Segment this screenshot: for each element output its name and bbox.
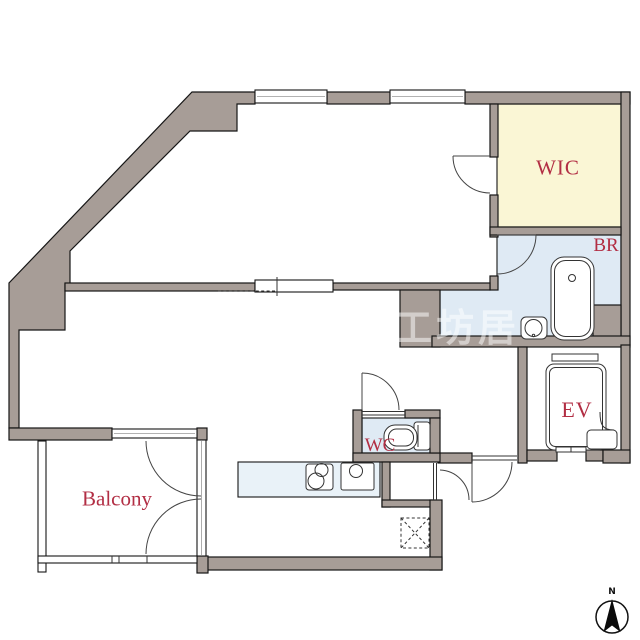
stove <box>306 464 333 491</box>
wc-door-threshold <box>362 412 405 416</box>
bathroom-sink <box>521 317 547 339</box>
wall-top-right <box>465 92 630 104</box>
compass-north-arrow <box>604 599 621 632</box>
entrance-threshold <box>472 456 517 460</box>
balcony-door-lower <box>146 499 201 554</box>
wall-left-diagonal <box>9 92 255 428</box>
wall-wc-bottom <box>353 453 440 462</box>
post-balcony-bottom <box>197 556 208 573</box>
wall-wic-bottom <box>490 227 621 235</box>
balcony-railing-bottom <box>38 556 197 563</box>
toilet <box>384 422 430 450</box>
compass-north-label: N <box>608 587 616 597</box>
pipe-space-box <box>401 518 429 548</box>
wall-right-upper <box>621 92 630 345</box>
sliding-door <box>255 280 333 292</box>
post-balcony-top <box>197 428 207 440</box>
wall-wic-left-lower <box>490 276 498 290</box>
alcove-opening-frame <box>434 463 437 500</box>
wall-elevator-right <box>621 345 630 463</box>
wall-elevator-left <box>518 347 527 463</box>
wall-top-middle <box>327 92 390 104</box>
wic-floor <box>497 104 621 227</box>
elevator-cab <box>546 354 617 452</box>
bathtub <box>551 257 594 340</box>
wall-middle-right <box>333 283 490 290</box>
wall-corner-southeast <box>603 450 630 463</box>
balcony-railing-left <box>38 441 46 572</box>
wall-middle-left <box>65 283 255 291</box>
wc-door <box>362 373 399 410</box>
wall-wc-right <box>430 418 440 453</box>
wic-door <box>453 156 490 193</box>
alcove-door <box>440 470 469 500</box>
kitchen-counter <box>238 462 380 497</box>
wall-elevator-bottom-left <box>527 450 557 461</box>
balcony-door-upper <box>146 441 201 496</box>
wall-bottom <box>198 557 442 570</box>
kitchen-sink <box>341 463 374 490</box>
entrance-door <box>472 462 512 502</box>
wall-entrance-left <box>438 453 472 463</box>
wall-alcove-bottom <box>382 500 432 507</box>
wall-livingroom-south <box>9 428 112 440</box>
wall-elevator-bottom-right <box>586 450 603 461</box>
wall-wc-top <box>405 410 440 418</box>
compass <box>596 599 628 633</box>
floor-plan-drawing <box>0 0 640 640</box>
floor-plan: WIC BR EV WC Balcony N 工坊居 <box>0 0 640 640</box>
wall-wic-left-upper <box>490 104 498 157</box>
